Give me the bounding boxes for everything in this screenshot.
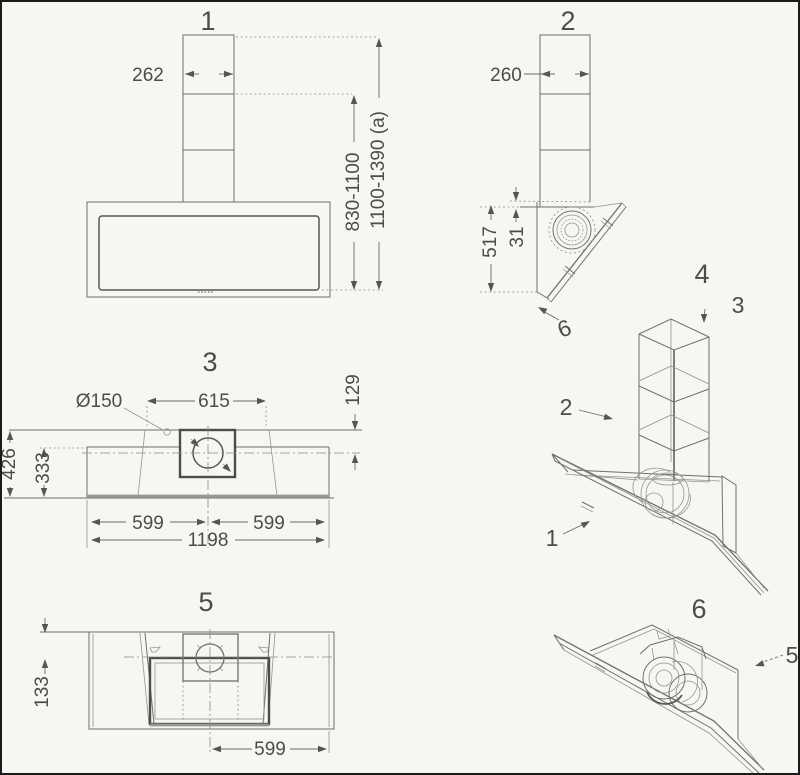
callout-label-chimney-upper: 3: [732, 292, 745, 318]
top-dim-duct-offset: 129: [343, 374, 364, 470]
dim-label-duct-offset: 129: [343, 374, 364, 406]
top-dim-duct-panel-width: 615: [147, 391, 266, 426]
dim-label-depth-total: 426: [2, 448, 20, 480]
dim-label-duct-diameter: Ø150: [76, 391, 122, 412]
iso-chimney-wireframe: [639, 319, 709, 482]
bottom-filter-clip: [150, 647, 160, 652]
dim-label-edge-offset: 133: [32, 676, 53, 708]
view-iso-assembly-title: 4: [694, 259, 709, 289]
view-iso-body: 6: [554, 594, 798, 773]
view-iso-assembly: 4: [546, 259, 768, 595]
top-dim-duct-diameter: Ø150: [76, 391, 170, 435]
dim-label-chimney-depth: 260: [490, 65, 522, 86]
front-chimney-outline: [183, 35, 234, 202]
bottom-filter-frame: [150, 658, 269, 724]
bottom-dim-half-width: 599: [212, 731, 329, 760]
dim-label-half-width-right: 599: [253, 513, 285, 534]
view-iso-body-title: 6: [691, 594, 706, 624]
side-callout-glass-panel: 6: [536, 304, 574, 342]
dim-label-total-width: 1198: [188, 530, 229, 551]
dim-label-chimney-width: 262: [132, 65, 164, 86]
dim-label-top-offset: 31: [507, 226, 528, 247]
dim-label-half-width: 599: [254, 739, 286, 760]
view-front: 1 262 830-1100: [87, 6, 389, 297]
side-body-outline: [520, 202, 626, 302]
front-dim-mount-heights: 830-1100 1100-1390 (a): [236, 37, 389, 290]
dim-label-half-width-left: 599: [132, 513, 164, 534]
top-dim-depth-total: 426: [2, 431, 20, 497]
bottom-dim-edge-offset: 133: [32, 618, 53, 708]
callout-label-chimney-lower: 2: [560, 394, 573, 420]
dim-label-depth-inner: 333: [33, 452, 54, 484]
callout-label-body-unit: 5: [786, 642, 798, 668]
dim-label-mount-height-b: 1100-1390 (a): [368, 111, 389, 229]
dim-label-body-height: 517: [480, 226, 501, 258]
top-dim-depth-inner: 333: [33, 448, 54, 497]
iso-body-glass-panel: [554, 635, 764, 773]
view-side: 2 260: [480, 6, 626, 343]
dim-label-mount-height-a: 830-1100: [343, 153, 364, 232]
bottom-body-outline: [40, 629, 334, 755]
view-bottom-title: 5: [198, 587, 213, 617]
drawing-canvas: 1 262 830-1100: [2, 2, 798, 773]
view-top-title: 3: [202, 347, 217, 377]
bottom-filter-clip: [259, 647, 269, 652]
iso-body-callout: 5: [754, 642, 798, 669]
view-front-title: 1: [200, 6, 215, 36]
dim-label-duct-panel-width: 615: [198, 391, 230, 412]
top-body-outline: [4, 426, 362, 548]
side-chimney-outline: [540, 35, 590, 207]
callout-label-body: 1: [546, 525, 559, 551]
callout-label-glass-panel: 6: [554, 314, 575, 343]
front-body-outline: [87, 202, 330, 297]
view-bottom: 5: [32, 587, 334, 760]
view-top: 3 Ø150: [2, 347, 364, 551]
installation-drawing-sheet: 1 262 830-1100: [0, 0, 800, 775]
view-side-title: 2: [560, 6, 575, 36]
